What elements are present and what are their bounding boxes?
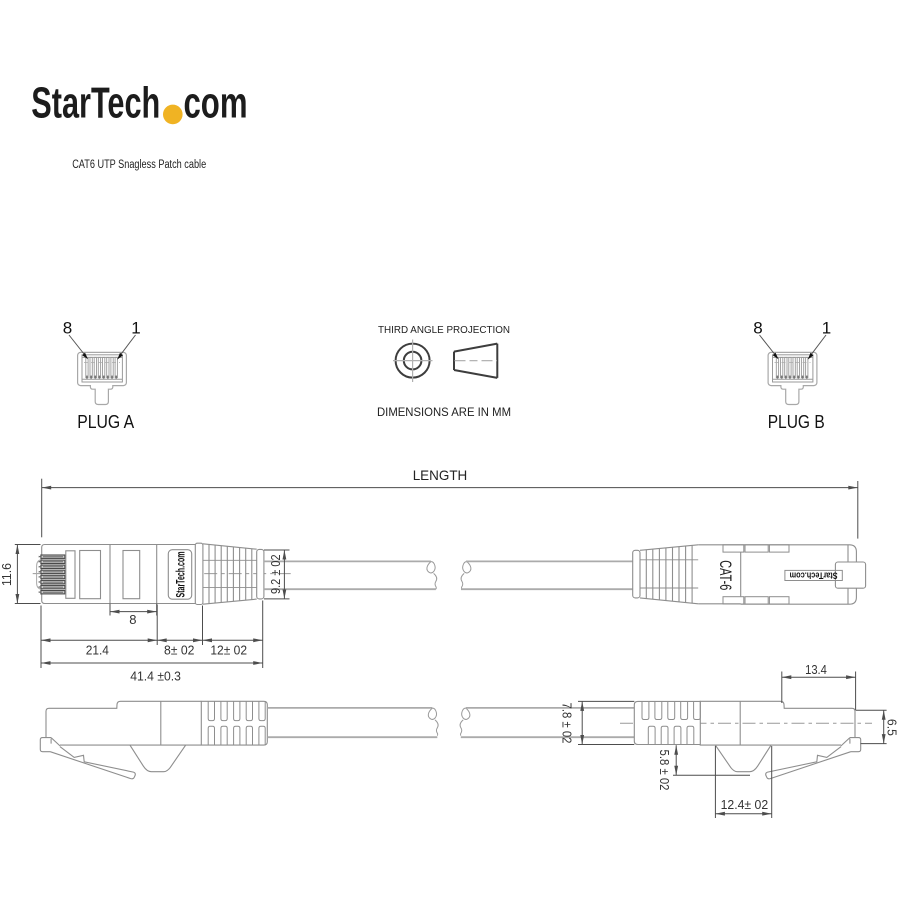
svg-text:8± 02: 8± 02: [164, 643, 195, 658]
svg-text:THIRD ANGLE PROJECTION: THIRD ANGLE PROJECTION: [378, 324, 510, 336]
svg-text:com: com: [184, 78, 248, 127]
svg-text:CAT-6: CAT-6: [716, 560, 735, 590]
svg-text:PLUG B: PLUG B: [768, 412, 825, 432]
svg-text:11.6: 11.6: [0, 563, 14, 586]
svg-text:8: 8: [753, 319, 762, 338]
svg-text:12± 02: 12± 02: [210, 643, 247, 658]
svg-text:DIMENSIONS ARE IN MM: DIMENSIONS ARE IN MM: [377, 405, 511, 419]
svg-text:8: 8: [63, 319, 72, 338]
svg-text:1: 1: [131, 319, 140, 338]
svg-text:PLUG A: PLUG A: [77, 412, 134, 432]
svg-text:9.2 ± 02: 9.2 ± 02: [268, 554, 283, 594]
svg-text:7.8 ± 02: 7.8 ± 02: [559, 703, 574, 744]
svg-text:41.4 ±0.3: 41.4 ±0.3: [130, 668, 181, 683]
svg-text:12.4± 02: 12.4± 02: [721, 797, 769, 812]
svg-text:1: 1: [822, 319, 831, 338]
svg-text:5.8 ± 02: 5.8 ± 02: [657, 750, 672, 791]
svg-text:CAT6 UTP Snagless Patch cable: CAT6 UTP Snagless Patch cable: [72, 159, 206, 171]
svg-text:LENGTH: LENGTH: [413, 467, 468, 483]
svg-text:StarTech.com: StarTech.com: [174, 552, 188, 598]
svg-text:21.4: 21.4: [86, 643, 109, 658]
svg-text:StarTech.com: StarTech.com: [790, 571, 838, 581]
svg-text:8: 8: [129, 612, 136, 627]
svg-text:StarTech: StarTech: [31, 78, 160, 127]
svg-text:13.4: 13.4: [805, 662, 827, 677]
svg-text:6.5: 6.5: [885, 719, 900, 736]
